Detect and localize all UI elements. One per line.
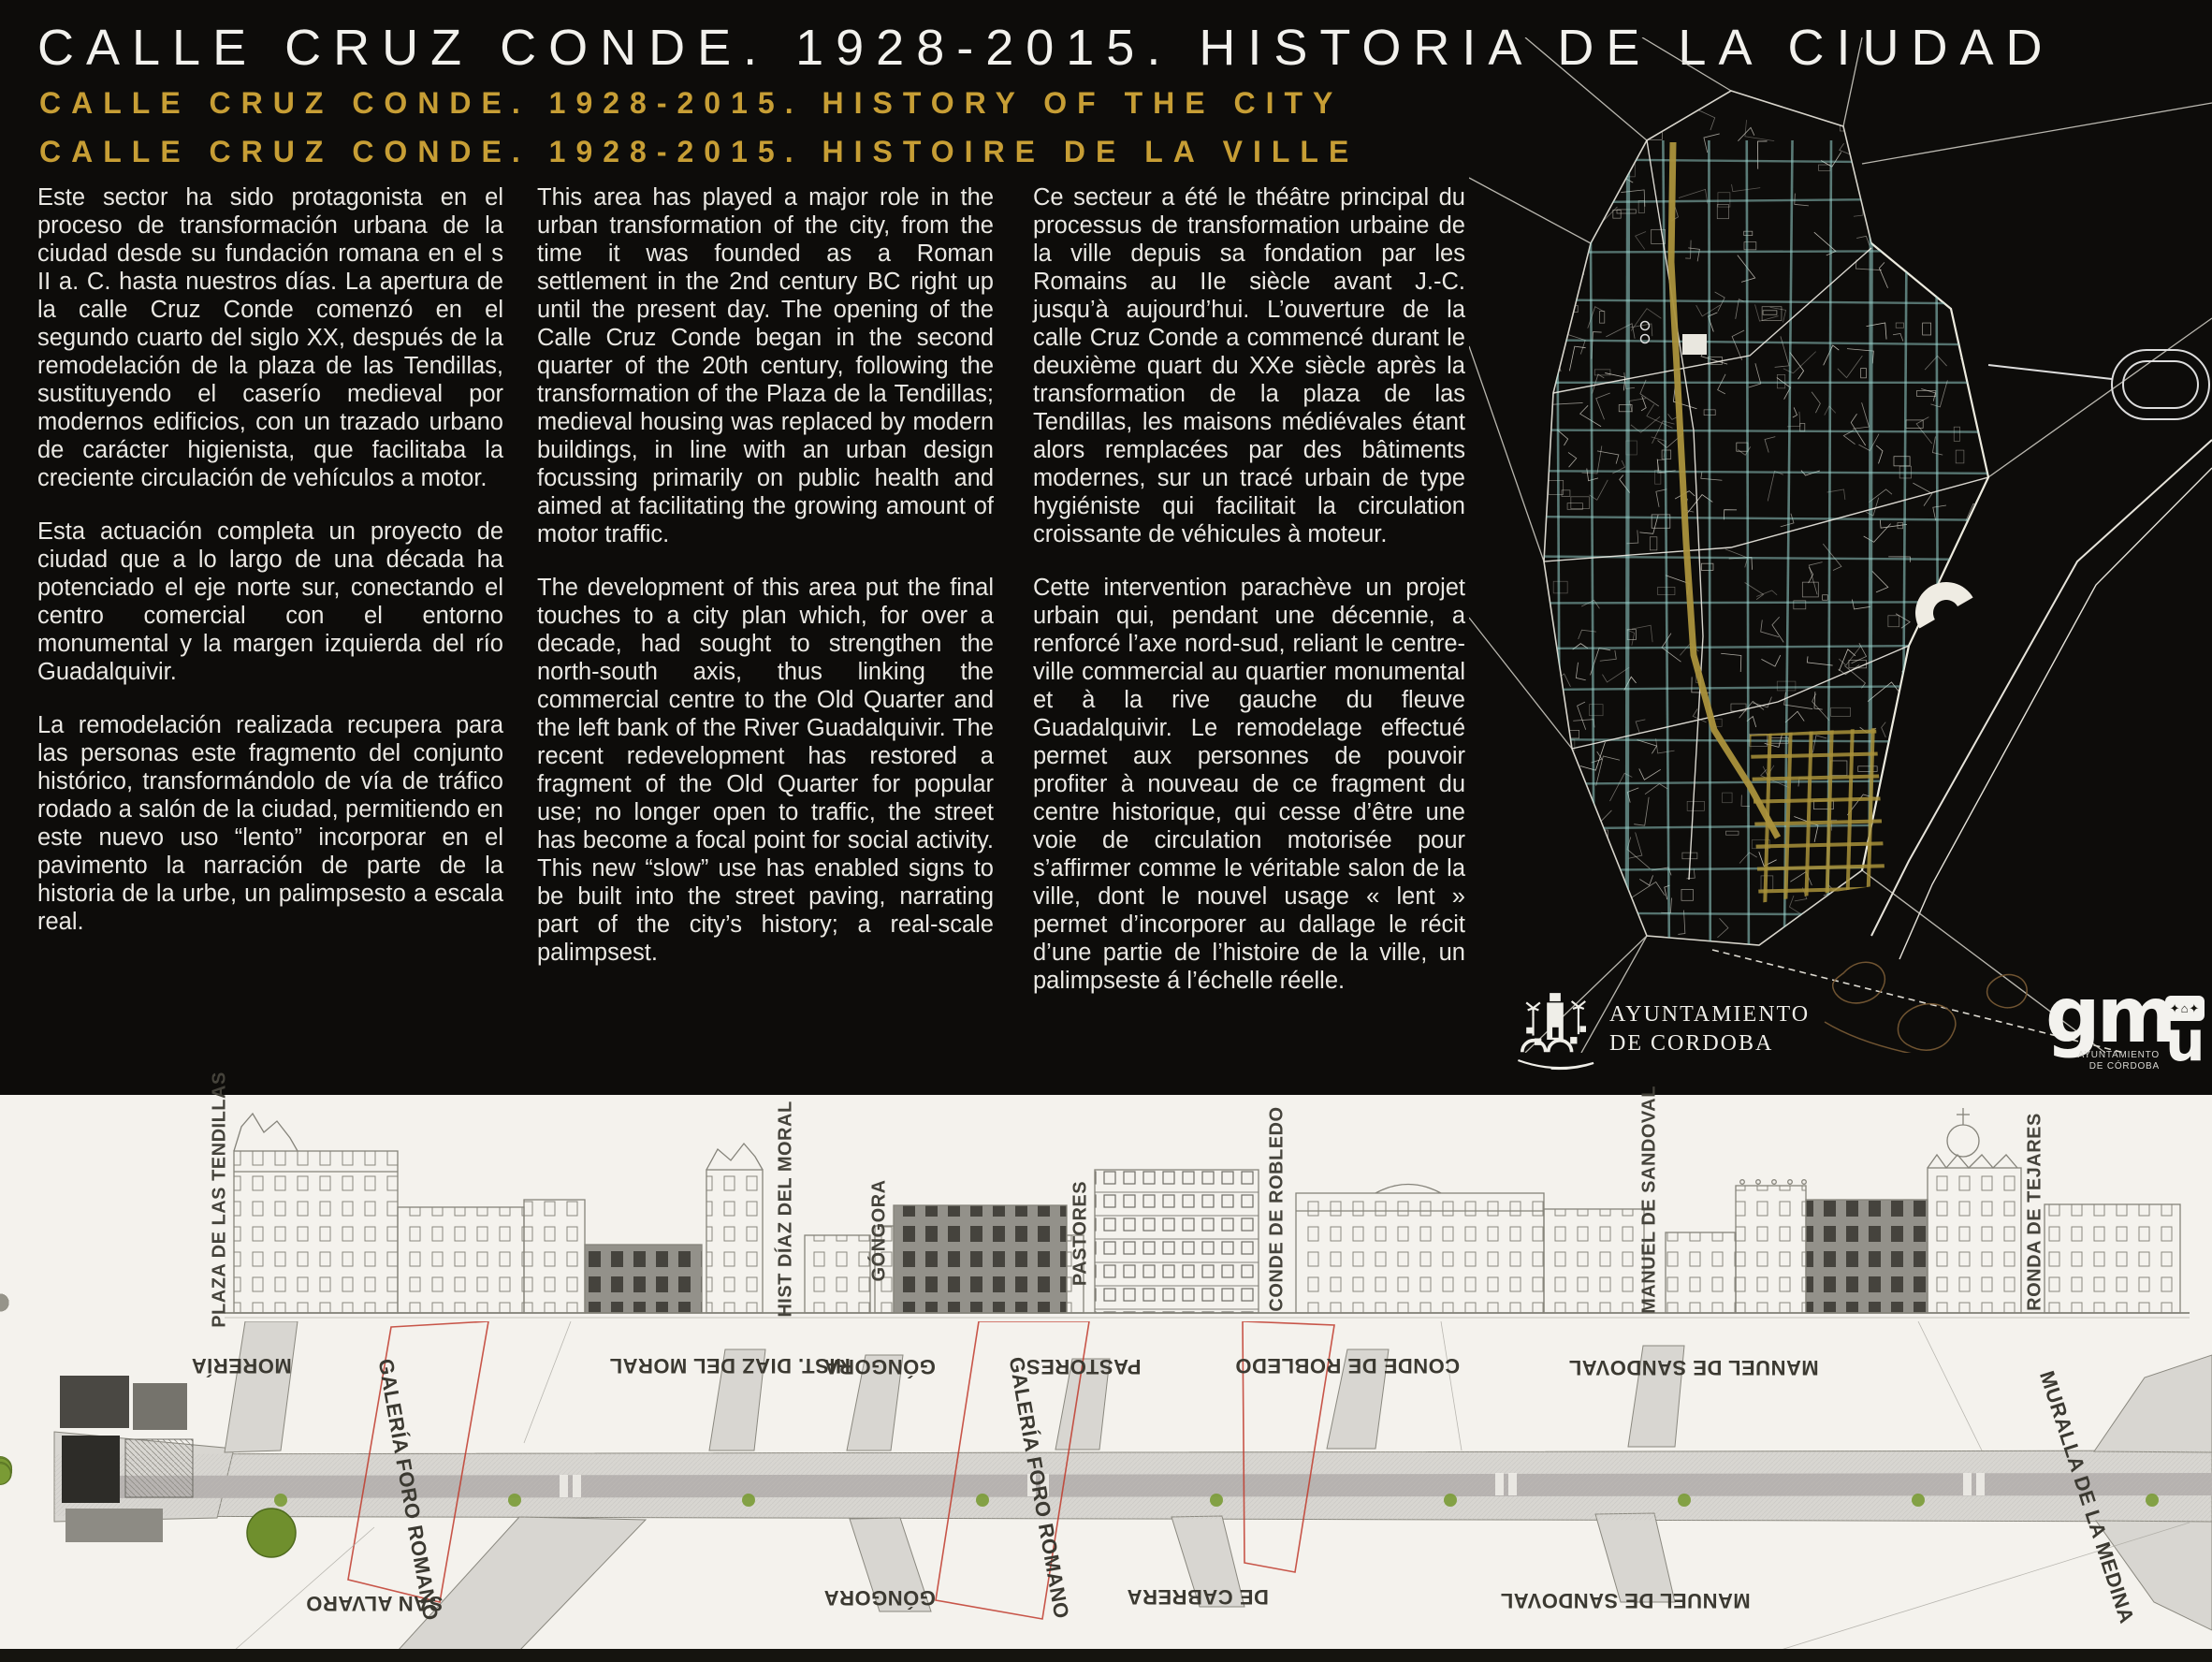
ayuntamiento-line2: DE CORDOBA: [1609, 1029, 1810, 1058]
elev-label-hist-diaz: HIST DÍAZ DEL MORAL: [776, 1101, 797, 1317]
city-map-svg: [1469, 37, 2212, 1053]
ayuntamiento-line1: AYUNTAMIENTO: [1609, 1000, 1810, 1029]
plan-label-hist-diaz: HIST. DIAZ DEL MORAL: [609, 1353, 851, 1378]
ayuntamiento-logo: AYUNTAMIENTO DE CORDOBA: [1514, 975, 1823, 1083]
gmu-letter-u: u: [2165, 1009, 2205, 1074]
contour-lines: [1825, 962, 2027, 1053]
plan-label-conde-robledo: CONDE DE ROBLEDO: [1235, 1353, 1460, 1378]
paragraph: La remodelación realizada recupera para …: [37, 711, 503, 936]
gmu-caption: AYUNTAMIENTO DE CÓRDOBA: [2077, 1050, 2160, 1072]
column-english: This area has played a major role in the…: [537, 183, 994, 992]
paragraph: The development of this area put the fin…: [537, 574, 994, 967]
gmu-logo: gm ✦⌂✦ u AYUNTAMIENTO DE CÓRDOBA: [2045, 984, 2212, 1089]
elev-label-ronda-tejares: RONDA DE TEJARES: [2025, 1113, 2046, 1311]
ayuntamiento-logo-text: AYUNTAMIENTO DE CORDOBA: [1609, 1000, 1810, 1058]
plan-label-moreria: MORERÍA: [191, 1353, 291, 1378]
ayuntamiento-crest-icon: [1514, 981, 1596, 1078]
elev-label-manuel-sandoval: MANUEL DE SANDOVAL: [1639, 1086, 1661, 1314]
elevation-drawing: [0, 1095, 2212, 1323]
radiating-roads: [1469, 37, 2212, 1053]
plan-label-manuel-sandoval-top: MANUEL DE SANDOVAL: [1568, 1355, 1818, 1379]
plan-label-pastores: PASTORES: [1026, 1354, 1142, 1378]
plan-label-de-cabrera: DE CABRERA: [1127, 1584, 1269, 1609]
paragraph: This area has played a major role in the…: [537, 183, 994, 548]
elev-label-plaza-tendillas: PLAZA DE LAS TENDILLAS: [210, 1072, 231, 1328]
paragraph: Esta actuación completa un proyecto de c…: [37, 518, 503, 686]
east-wall: [1862, 243, 1988, 870]
column-spanish: Este sector ha sido protagonista en el p…: [37, 183, 503, 961]
tendillas-plaza-block: [1682, 334, 1707, 355]
page-subtitle-fr: CALLE CRUZ CONDE. 1928-2015. HISTOIRE DE…: [39, 135, 1359, 169]
elev-label-gongora: GÓNGORA: [869, 1179, 891, 1281]
paragraph: Este sector ha sido protagonista en el p…: [37, 183, 503, 492]
header-panel: CALLE CRUZ CONDE. 1928-2015. HISTORIA DE…: [0, 0, 2212, 1095]
bottom-edge-strip: [0, 1649, 2212, 1662]
plan-label-san-alvaro: SAN ALVARO: [306, 1591, 443, 1615]
gmu-letters: gm: [2045, 971, 2173, 1060]
plan-label-gongora-top: GÓNGORA: [823, 1354, 936, 1378]
plan-label-manuel-sandoval-bottom: MANUEL DE SANDOVAL: [1500, 1588, 1750, 1612]
river-lines: [1871, 440, 2212, 959]
gmu-caption-line2: DE CÓRDOBA: [2077, 1061, 2160, 1072]
gmu-caption-line1: AYUNTAMIENTO: [2077, 1050, 2160, 1061]
stadium-shape: [1988, 350, 2209, 419]
city-map: [1469, 37, 2212, 1053]
elev-label-conde-robledo: CONDE DE ROBLEDO: [1267, 1106, 1288, 1311]
paragraph: Cette intervention parachève un projet u…: [1033, 574, 1465, 995]
elev-label-pastores: PASTORES: [1070, 1181, 1092, 1286]
gold-route-cruz-conde: [1671, 142, 1778, 838]
page-subtitle-en: CALLE CRUZ CONDE. 1928-2015. HISTORY OF …: [39, 86, 1343, 121]
plan-label-gongora-bottom: GÓNGORA: [823, 1585, 936, 1610]
column-french: Ce secteur a été le théâtre principal du…: [1033, 183, 1465, 1020]
paragraph: Ce secteur a été le théâtre principal du…: [1033, 183, 1465, 548]
building-facades: [225, 1108, 2190, 1318]
information-panel: CALLE CRUZ CONDE. 1928-2015. HISTORIA DE…: [0, 0, 2212, 1662]
